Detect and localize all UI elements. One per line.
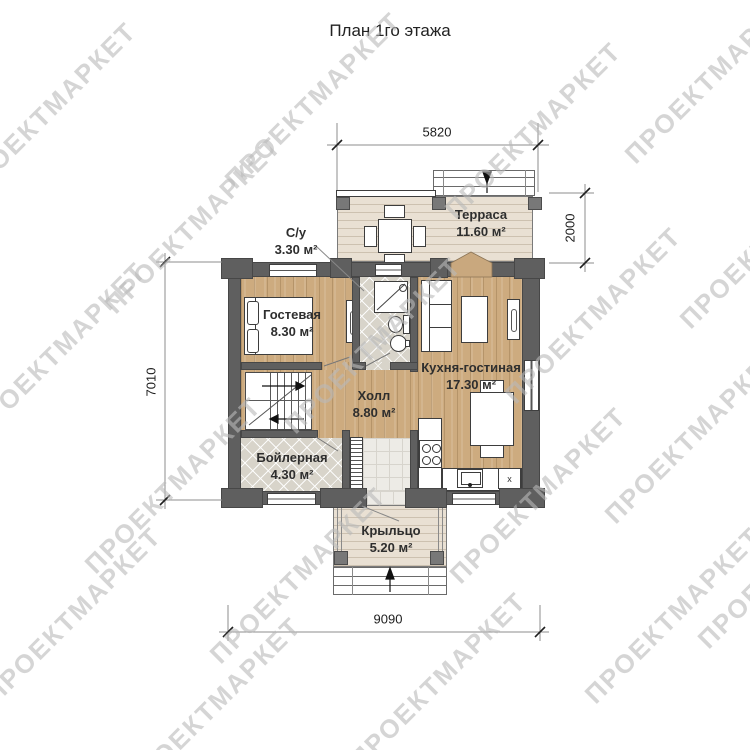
- dimension-right-value: 2000: [563, 214, 578, 243]
- annotation-lines: [0, 0, 750, 750]
- hall-name: Холл: [353, 387, 396, 404]
- bathroom-leader-line: [316, 246, 364, 291]
- guest-area: 8.30 м²: [263, 323, 321, 340]
- page-title: План 1го этажа: [329, 21, 450, 41]
- kitchen-name: Кухня-гостиная: [421, 359, 521, 376]
- bathroom-name: С/у: [275, 224, 318, 241]
- guest-name: Гостевая: [263, 306, 321, 323]
- porch-name: Крыльцо: [361, 522, 420, 539]
- kitchen-label: Кухня-гостиная 17.30 м²: [421, 359, 521, 393]
- guest-door-swing: [324, 357, 350, 366]
- boiler-name: Бойлерная: [256, 449, 327, 466]
- porch-steps-arrow: [386, 568, 394, 592]
- stair-break-line: [249, 375, 311, 425]
- shower-diagonal: [377, 284, 405, 310]
- porch-leader-line: [362, 506, 399, 521]
- hall-area: 8.80 м²: [353, 404, 396, 421]
- dimension-left-value: 7010: [144, 368, 159, 397]
- floor-plan: План 1го этажа: [0, 0, 750, 750]
- bathroom-label: С/у 3.30 м²: [275, 224, 318, 258]
- dimension-left: [156, 253, 222, 509]
- porch-area: 5.20 м²: [361, 539, 420, 556]
- guest-label: Гостевая 8.30 м²: [263, 306, 321, 340]
- terrace-door: [451, 252, 492, 277]
- boiler-area: 4.30 м²: [256, 466, 327, 483]
- stair-direction-arrows: [262, 382, 304, 423]
- terrace-name: Терраса: [455, 206, 507, 223]
- dimension-bottom-value: 9090: [374, 612, 403, 627]
- porch-label: Крыльцо 5.20 м²: [361, 522, 420, 556]
- hall-label: Холл 8.80 м²: [353, 387, 396, 421]
- kitchen-area: 17.30 м²: [421, 376, 521, 393]
- terrace-label: Терраса 11.60 м²: [455, 206, 507, 240]
- bathroom-area: 3.30 м²: [275, 241, 318, 258]
- bathroom-door-swing: [366, 353, 390, 366]
- dimension-top-value: 5820: [423, 125, 452, 140]
- boiler-label: Бойлерная 4.30 м²: [256, 449, 327, 483]
- terrace-area: 11.60 м²: [455, 223, 507, 240]
- terrace-steps-arrow: [483, 172, 491, 193]
